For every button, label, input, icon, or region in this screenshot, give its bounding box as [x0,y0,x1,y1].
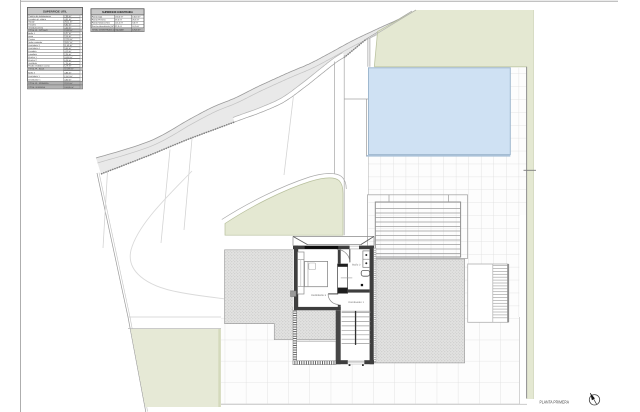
svg-text:Distribuidor 1: Distribuidor 1 [349,301,365,304]
svg-text:29,6 m²: 29,6 m² [132,19,139,22]
svg-text:TOTAL VIVIENDA: TOTAL VIVIENDA [28,86,45,89]
svg-text:115,2 m²: 115,2 m² [115,22,123,25]
svg-text:184,65 m²: 184,65 m² [64,86,74,89]
svg-text:Piscina descubierta (NC): Piscina descubierta (NC) [92,25,115,28]
svg-text:Dormitorio 1: Dormitorio 1 [312,294,327,297]
svg-text:0,0 m²: 0,0 m² [132,22,138,25]
svg-text:Planta Primera: Planta Primera [92,19,107,22]
svg-text:Planta Sótano (NC): Planta Sótano (NC) [92,22,110,25]
svg-text:175,6 m²: 175,6 m² [132,29,141,32]
svg-text:SUPERFICIE UTIL: SUPERFICIE UTIL [43,10,67,14]
svg-text:32,0 m²: 32,0 m² [115,25,122,28]
svg-text:PLANTA PRIMERA: PLANTA PRIMERA [540,400,570,405]
svg-text:130,0 m²: 130,0 m² [132,15,141,18]
svg-text:SUPERFICIE CONSTRUIDA: SUPERFICIE CONSTRUIDA [102,11,133,14]
svg-text:Planta baja: Planta baja [92,15,103,18]
svg-text:16,0 m²: 16,0 m² [132,25,139,28]
svg-text:Baño 2: Baño 2 [352,264,361,267]
svg-text:TOTAL CONSTRUIDA computable: TOTAL CONSTRUIDA computable [92,29,125,32]
svg-text:29,6 m²: 29,6 m² [115,19,122,22]
svg-text:130,0 m²: 130,0 m² [115,15,124,18]
